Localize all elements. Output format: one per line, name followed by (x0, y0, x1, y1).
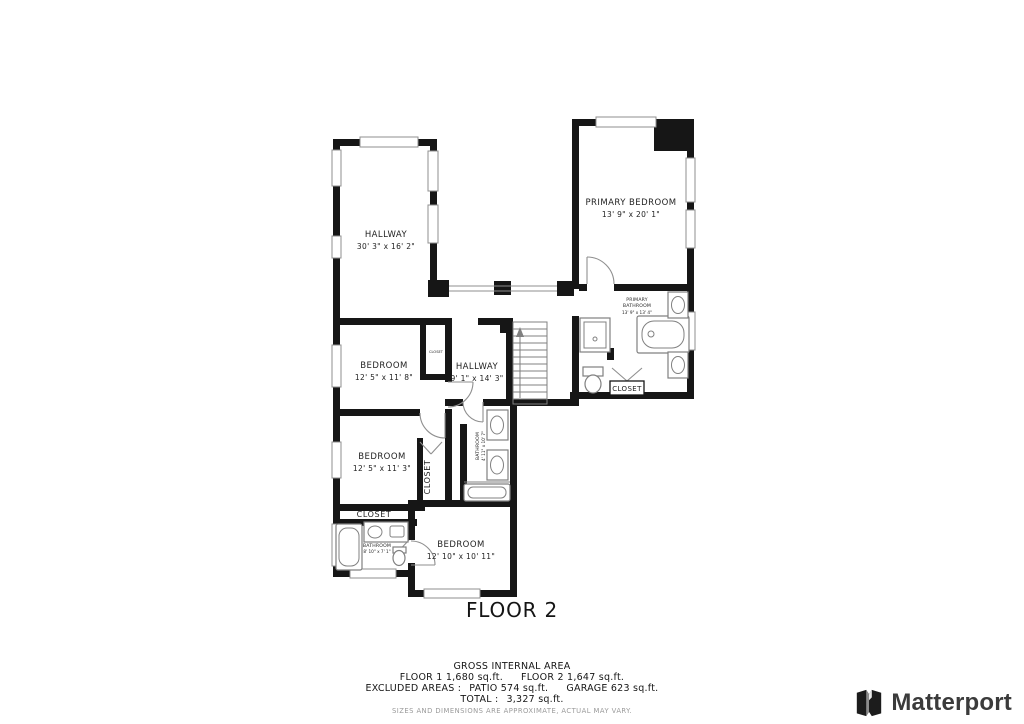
room-label-hallway-small: HALLWAY (456, 362, 499, 372)
closet-label-primary: CLOSET (612, 385, 642, 393)
room-dims-bedroom-1: 12' 5" x 11' 8" (355, 373, 413, 382)
floorplan-page: HALLWAY 30' 3" x 16' 2" PRIMARY BEDROOM … (0, 0, 1024, 724)
summary-garage: GARAGE 623 sq.ft. (566, 683, 658, 694)
summary-total-label: TOTAL : (460, 694, 498, 705)
room-dims-hallway-small: 9' 1" x 14' 3" (450, 374, 503, 383)
room-label-primary-bathroom-1: PRIMARY (626, 297, 648, 303)
summary-floor2: FLOOR 2 1,647 sq.ft. (521, 672, 624, 683)
room-dims-bedroom-3: 12' 10" x 10' 11" (427, 552, 495, 561)
floor-title: FLOOR 2 (0, 598, 1024, 622)
summary-total-value: 3,327 sq.ft. (506, 694, 563, 705)
summary-floors: FLOOR 1 1,680 sq.ft.FLOOR 2 1,647 sq.ft. (0, 672, 1024, 683)
matterport-branding: Matterport (854, 688, 1012, 718)
summary-floor1: FLOOR 1 1,680 sq.ft. (400, 672, 503, 683)
matterport-logo-icon (854, 688, 884, 718)
matterport-wordmark: Matterport (891, 689, 1012, 717)
room-dims-hall-bathroom: 4' 11" x 10' 7" (481, 431, 486, 461)
room-label-bedroom-3: BEDROOM (437, 540, 485, 550)
doors (393, 257, 642, 565)
room-label-bedroom-2: BEDROOM (358, 452, 406, 462)
closet-label-bedroom1: CLOSET (429, 350, 444, 354)
room-dims-bedroom-2: 12' 5" x 11' 3" (353, 464, 411, 473)
room-label-bedroom-1: BEDROOM (360, 361, 408, 371)
summary-title: GROSS INTERNAL AREA (0, 661, 1024, 672)
vanity-icon (364, 522, 408, 542)
summary-excluded-label: EXCLUDED AREAS : (366, 683, 462, 694)
room-label-primary-bedroom: PRIMARY BEDROOM (585, 198, 676, 208)
room-dims-primary-bedroom: 13' 9" x 20' 1" (602, 210, 660, 219)
closet-label-bedroom2: CLOSET (423, 460, 432, 495)
bathtub-icon (336, 524, 362, 570)
hall-bathroom-fixtures (464, 410, 510, 501)
room-dims-primary-bathroom: 13' 9" x 13' 4" (622, 310, 652, 315)
room-dims-left-bathroom: 8' 10" x 7' 1" (363, 549, 390, 554)
room-label-primary-bathroom-2: BATHROOM (623, 303, 651, 309)
stairs (513, 322, 547, 404)
bathtub-icon (637, 316, 689, 353)
summary-patio: PATIO 574 sq.ft. (469, 683, 548, 694)
room-dims-hallway-large: 30' 3" x 16' 2" (357, 242, 415, 251)
closet-label-hall: CLOSET (357, 510, 392, 519)
room-label-hallway-large: HALLWAY (365, 230, 408, 240)
